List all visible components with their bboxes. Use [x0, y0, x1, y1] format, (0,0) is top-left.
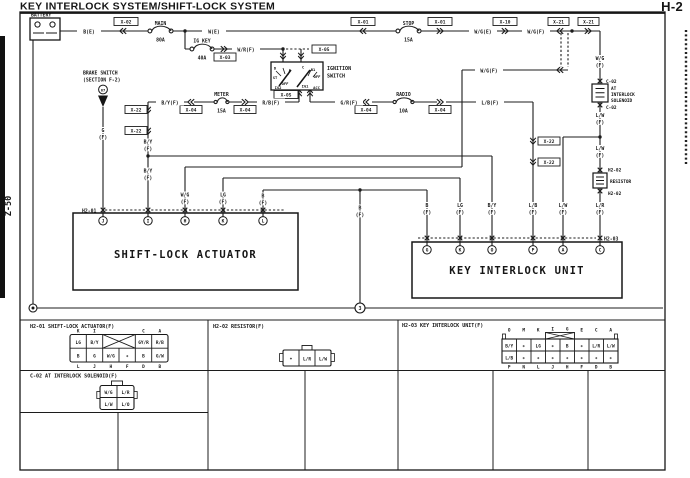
unit-name: KEY INTERLOCK UNIT	[449, 265, 584, 277]
fuse-meter-icon	[214, 98, 229, 104]
connector-ref: C-02	[606, 105, 617, 111]
resistor-label: RESISTOR	[610, 179, 632, 185]
connector-ref: X-10	[500, 20, 511, 26]
pin-letter: K	[77, 329, 80, 335]
wire-suffix-label: (F)	[99, 135, 108, 141]
switch-pos: IG2	[275, 85, 282, 90]
solenoid-label: SOLENOID	[611, 98, 633, 104]
pin-letter: K	[459, 248, 462, 254]
connector-ref: X-01	[358, 20, 369, 26]
pin-letter: J	[93, 364, 96, 370]
pin-letter: O	[491, 248, 494, 254]
wire-suffix-label: (F)	[356, 212, 365, 218]
connector-ref: X-04	[186, 108, 197, 114]
pin-letter: P	[532, 248, 535, 254]
wire-color-label: W/R(F)	[237, 47, 254, 53]
table-title: H2-02 RESISTOR(F)	[213, 324, 264, 330]
wire-suffix-label: (F)	[596, 210, 605, 216]
connector-ref: X-05	[281, 93, 292, 99]
connector-ref: X-04	[435, 108, 446, 114]
wire-color-label: W/G(E)	[474, 29, 491, 35]
wire-color-label: G/R(F)	[340, 100, 357, 106]
wire-suffix-label: (F)	[596, 120, 605, 126]
wire-dashed-segments	[105, 33, 596, 238]
wire-color-label: G	[102, 128, 105, 134]
wire-color-label: W/G	[181, 193, 190, 199]
wire-suffix-label: (F)	[259, 200, 268, 206]
wire-color-label: W/G(F)	[480, 68, 497, 74]
pin-letter: B	[609, 365, 612, 371]
fuse-radio-icon	[393, 98, 414, 104]
connector-ref: H2-02	[608, 168, 622, 174]
pin-letter: D	[595, 365, 598, 371]
pin-wire-color: L/W	[319, 356, 327, 362]
fuse-amp: 15A	[404, 38, 413, 44]
pin-letter: B	[158, 364, 161, 370]
wire-color-label: L/B	[529, 203, 538, 209]
connector-ref: X-02	[121, 20, 132, 26]
pin-wire-color: B	[566, 344, 569, 350]
key-interlock-unit-box: H2-03 G K O P A C KEY INTERLOCK UNIT	[412, 237, 622, 299]
switch-pos: OFF	[314, 74, 322, 79]
wire-suffix-label: (F)	[181, 199, 190, 205]
wire-color-label: B	[426, 203, 429, 209]
pin-wire-color: L/O	[122, 402, 130, 408]
connector-ref-boxes: X-02 X-01 X-01 X-10 X-21 X-21 X-03 X-05 …	[114, 18, 599, 167]
pin-wire-color: *	[580, 357, 583, 363]
wire-color-label: W(E)	[208, 29, 220, 35]
connector-ref: H2-02	[608, 191, 622, 197]
ground-number: 3	[358, 306, 361, 312]
pin-letter: A	[562, 248, 565, 254]
wire-color-label: L/W	[596, 113, 605, 119]
pin-letter: C	[595, 328, 598, 334]
pin-wire-color: *	[522, 345, 525, 351]
pin-letter: C	[599, 248, 602, 254]
pin-wire-color: LG	[536, 344, 542, 350]
wire-column-labels: G (F) B/Y (F) B/Y (F) W/G (F) LG (F) B (…	[97, 55, 608, 218]
solenoid-label: INTERLOCK	[611, 92, 635, 98]
solenoid-label: AT	[611, 86, 617, 92]
pin-wire-color: *	[126, 355, 129, 361]
wire-color-label: B/Y(F)	[161, 100, 178, 106]
pin-wire-color: L/R	[122, 390, 130, 396]
pin-letter: C	[142, 329, 145, 335]
pin-wire-color: B	[142, 354, 145, 360]
wire-suffix-label: (F)	[559, 210, 568, 216]
wire-suffix-label: (F)	[423, 210, 432, 216]
wire-color-label: L/W	[596, 146, 605, 152]
wire-color-label: L/R	[596, 203, 605, 209]
pin-letter: O	[508, 328, 511, 334]
pin-wire-color: *	[522, 357, 525, 363]
unit-name: SHIFT-LOCK ACTUATOR	[114, 249, 257, 261]
h202-pinout: H2-02 RESISTOR(F) * L/R L/W	[213, 324, 334, 366]
pin-letter: D	[142, 364, 145, 370]
switch-pos: ST	[273, 75, 278, 80]
table-title: H2-03 KEY INTERLOCK UNIT(F)	[402, 323, 483, 329]
wire-color-label: B	[359, 206, 362, 212]
pin-letter: J	[102, 219, 105, 225]
pin-letter: N	[522, 365, 525, 371]
pin-letter: H	[184, 219, 187, 225]
fuse-name: STOP	[403, 21, 415, 27]
connector-ref: X-01	[435, 20, 446, 26]
pin-letter: F	[126, 364, 129, 370]
brake-switch: BRAKE SWITCH (SECTION F-2) 67	[83, 71, 121, 108]
wire-suffix-label: (F)	[596, 153, 605, 159]
fuse-name: MAIN	[155, 21, 167, 27]
pin-wire-color: LG	[76, 340, 82, 346]
wire-color-label: L/B(F)	[481, 100, 498, 106]
pin-wire-color: *	[551, 345, 554, 351]
h201-pinout: H2-01 SHIFT-LOCK ACTUATOR(F) K I C A LG …	[30, 324, 168, 370]
wire-color-label: B/Y	[488, 203, 497, 209]
switch-pos: OFF	[282, 81, 290, 86]
brake-switch-circuit-number: 67	[101, 87, 106, 92]
brake-switch-label: BRAKE SWITCH	[83, 71, 118, 77]
wire-suffix-label: (F)	[219, 199, 228, 205]
wire-color-label: W/G	[596, 56, 605, 62]
wiring-diagram: KEY INTERLOCK SYSTEM/SHIFT-LOCK SYSTEM H…	[0, 0, 690, 478]
connector-ref: X-04	[361, 108, 372, 114]
connector-ref: X-22	[544, 160, 555, 166]
pin-wire-color: G/W	[156, 354, 164, 360]
wire-color-label: R/B(F)	[262, 100, 279, 106]
switch-pos: ACC	[313, 85, 320, 90]
left-binding-bar	[0, 36, 5, 298]
connector-ref: X-21	[583, 20, 594, 26]
section-number: Z-50	[4, 196, 14, 216]
battery: BATTERY	[30, 13, 60, 41]
pin-letter: G	[566, 327, 569, 333]
connector-ref: X-22	[131, 129, 142, 135]
pin-letter: G	[426, 248, 429, 254]
wire-suffix-label: (F)	[529, 210, 538, 216]
wiring-diagram-page: KEY INTERLOCK SYSTEM/SHIFT-LOCK SYSTEM H…	[0, 0, 690, 478]
switch-pos: C	[302, 65, 304, 70]
fuse-igkey-icon	[190, 44, 214, 51]
wire-color-label: B/Y	[144, 169, 153, 175]
fuse-amp: 10A	[399, 109, 408, 115]
wire-color-label: B	[262, 194, 265, 200]
pin-letter: I	[551, 327, 554, 333]
pin-wire-color: L/R	[303, 356, 311, 362]
wire-color-label: LG	[457, 203, 463, 209]
connector-tables: H2-01 SHIFT-LOCK ACTUATOR(F) K I C A LG …	[30, 323, 618, 410]
wire-color-label: B/Y	[144, 140, 153, 146]
fuse-amp: 80A	[156, 38, 165, 44]
pin-wire-color: L/W	[607, 344, 615, 350]
pin-letter: F	[580, 365, 583, 371]
pin-letter: J	[551, 365, 554, 371]
connector-ref: X-22	[544, 139, 555, 145]
fuse-main-icon	[148, 26, 173, 33]
pin-wire-color: L/B	[505, 356, 513, 362]
wire-suffix-label: (F)	[456, 210, 465, 216]
pin-letter: M	[522, 328, 525, 334]
table-title: C-02 AT INTERLOCK SOLENOID(F)	[30, 374, 117, 380]
pin-wire-color: *	[580, 345, 583, 351]
pin-letter: H	[109, 364, 112, 370]
pin-letter: H	[566, 365, 569, 371]
pin-letter: P	[508, 365, 511, 371]
fuse-name: IG KEY	[193, 39, 210, 45]
pin-wire-color: *	[551, 357, 554, 363]
pin-letter: E	[580, 328, 583, 334]
fuse-amp: 40A	[198, 56, 207, 62]
pin-letter: K	[537, 328, 540, 334]
pin-wire-color: G	[93, 354, 96, 360]
wire-color-label: B(E)	[83, 29, 95, 35]
ignition-switch-label: IGNITION	[327, 66, 351, 72]
wire-color-label: L/W	[559, 203, 568, 209]
page-title: KEY INTERLOCK SYSTEM/SHIFT-LOCK SYSTEM	[20, 1, 275, 13]
wire-suffix-label: (F)	[144, 146, 153, 152]
brake-switch-section: (SECTION F-2)	[83, 78, 121, 84]
wire-suffix-label: (F)	[488, 210, 497, 216]
ignition-switch: D ST OFF IG2 C B1 OFF IG1 ACC IGNITION S…	[271, 62, 351, 90]
table-title: H2-01 SHIFT-LOCK ACTUATOR(F)	[30, 324, 114, 330]
h203-pinout: H2-03 KEY INTERLOCK UNIT(F) O M K I G E …	[402, 323, 618, 371]
c02-pinout: C-02 AT INTERLOCK SOLENOID(F) W/G L/R L/…	[30, 374, 137, 410]
wire-color-label: W/G(F)	[527, 29, 544, 35]
ignition-switch-label2: SWITCH	[327, 74, 345, 80]
arrow-down-icon	[98, 96, 108, 108]
shift-lock-actuator-box: H2-01 J I H K L SHIFT-LOCK ACTUATOR	[73, 209, 298, 291]
pin-wire-color: W/G	[105, 390, 113, 396]
fuse-stop-icon	[396, 26, 421, 33]
fuse-name: METER	[214, 92, 229, 98]
wire-color-label: LG	[220, 193, 226, 199]
pin-wire-color: *	[537, 357, 540, 363]
connector-ref: C-02	[606, 79, 617, 85]
pin-wire-color: *	[290, 357, 293, 363]
pin-letter: I	[93, 329, 96, 335]
connector-ref: X-05	[319, 47, 330, 53]
connector-ref: X-22	[131, 108, 142, 114]
pin-wire-color: L/R	[592, 344, 600, 350]
pin-wire-color: *	[609, 357, 612, 363]
pin-wire-color: B/Y	[505, 344, 513, 350]
connector-ref: X-04	[240, 108, 251, 114]
pin-letter: A	[158, 329, 161, 335]
pin-wire-color: B	[77, 354, 80, 360]
pin-wire-color: R/B	[156, 340, 164, 346]
wire-suffix-label: (F)	[144, 175, 153, 181]
pin-wire-color: B/Y	[91, 340, 99, 346]
switch-pos: B1	[311, 67, 316, 72]
pin-letter: K	[222, 219, 225, 225]
pin-wire-color: W/G	[107, 354, 115, 360]
switch-pos: IG1	[302, 84, 310, 89]
pin-letter: I	[147, 219, 150, 225]
pin-letter: L	[262, 219, 265, 225]
pin-letter: L	[537, 365, 540, 371]
pin-wire-color: *	[595, 357, 598, 363]
pin-wire-color: L/W	[105, 402, 113, 408]
pin-letter: L	[77, 364, 80, 370]
connector-ref: X-21	[553, 20, 564, 26]
wire-suffix-label: (F)	[596, 63, 605, 69]
fuse-name: RADIO	[396, 92, 411, 98]
fuse-amp: 15A	[217, 109, 226, 115]
connector-ref: X-03	[220, 55, 231, 61]
pin-wire-color: *	[566, 357, 569, 363]
pin-letter: A	[609, 328, 612, 334]
pin-wire-color: GY/R	[138, 340, 149, 346]
